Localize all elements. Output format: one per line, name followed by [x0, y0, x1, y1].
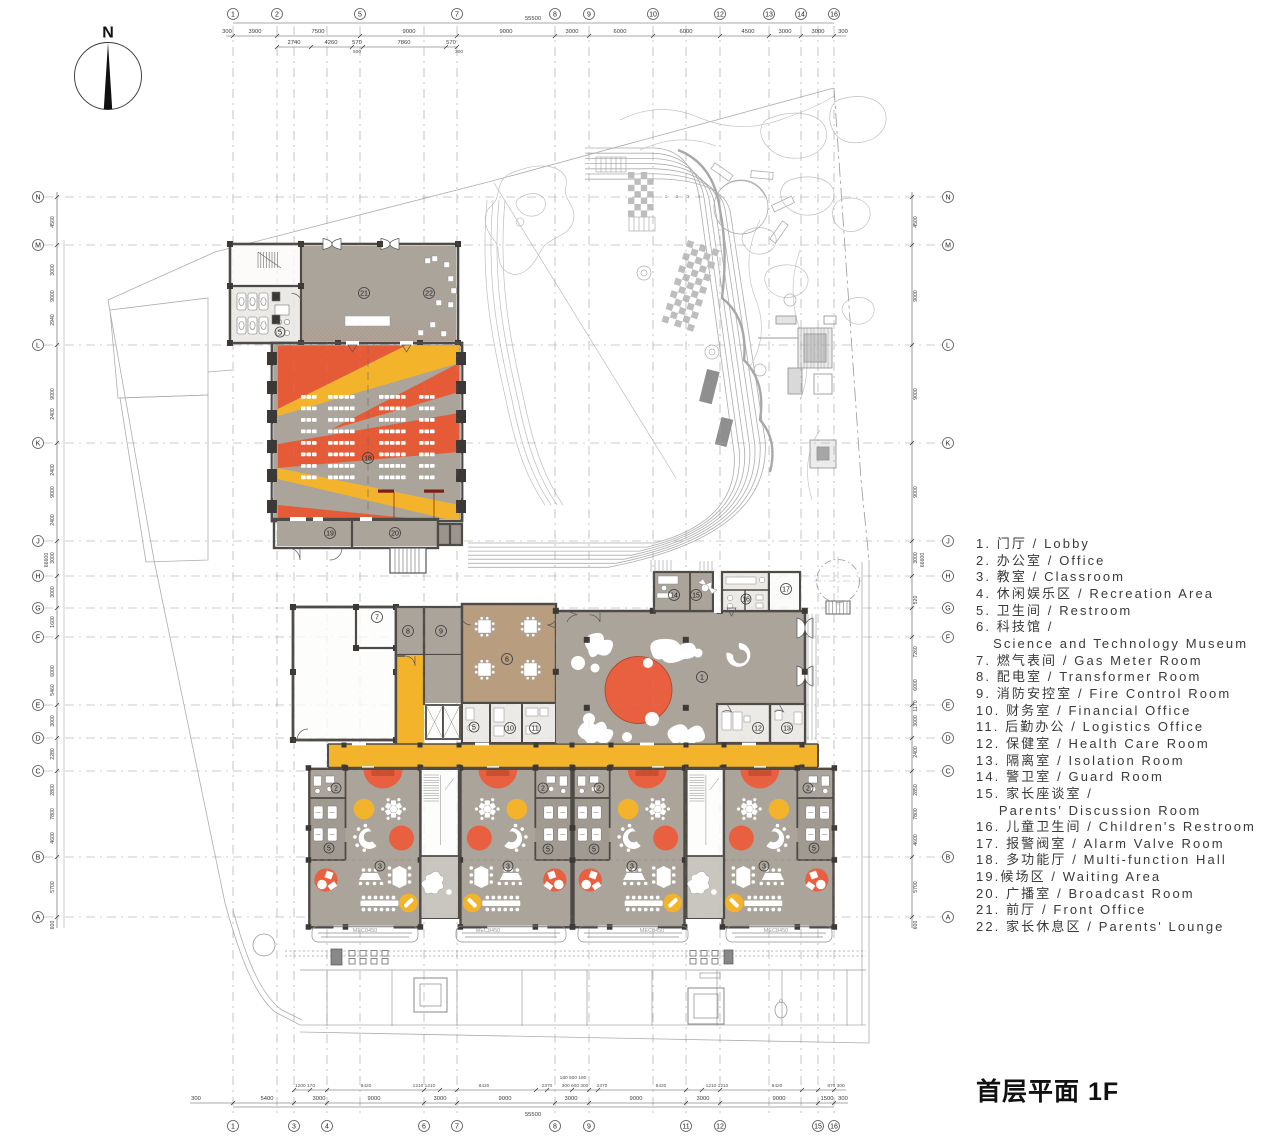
- svg-text:L: L: [36, 343, 40, 350]
- svg-text:300: 300: [838, 29, 848, 35]
- svg-text:2740: 2740: [288, 40, 301, 46]
- svg-text:N: N: [945, 195, 950, 202]
- svg-text:4500: 4500: [913, 216, 919, 228]
- svg-text:8420: 8420: [656, 1083, 667, 1089]
- svg-text:9: 9: [587, 12, 591, 19]
- svg-text:6000: 6000: [50, 665, 56, 677]
- svg-text:4: 4: [325, 1124, 329, 1131]
- svg-text:4600: 4600: [913, 834, 919, 846]
- svg-text:7500: 7500: [312, 29, 325, 35]
- svg-text:66600: 66600: [920, 553, 926, 568]
- svg-text:3000: 3000: [913, 715, 919, 727]
- svg-text:A: A: [36, 915, 41, 922]
- svg-text:6000: 6000: [614, 29, 627, 35]
- svg-text:C: C: [945, 769, 950, 776]
- svg-text:16: 16: [742, 597, 750, 604]
- svg-text:10: 10: [649, 12, 657, 19]
- svg-text:4500: 4500: [50, 216, 56, 228]
- svg-text:3000: 3000: [565, 1096, 578, 1102]
- svg-text:7800: 7800: [50, 808, 56, 820]
- svg-text:1: 1: [231, 12, 235, 19]
- svg-text:55500: 55500: [525, 1112, 541, 1118]
- svg-text:MEC8450: MEC8450: [764, 928, 788, 934]
- svg-text:4260: 4260: [325, 40, 338, 46]
- svg-text:N: N: [35, 195, 40, 202]
- svg-text:9000: 9000: [913, 388, 919, 400]
- svg-text:14: 14: [797, 12, 805, 19]
- svg-text:570: 570: [352, 40, 362, 46]
- svg-text:300: 300: [191, 1096, 201, 1102]
- svg-text:12: 12: [716, 1124, 724, 1131]
- svg-text:E: E: [946, 703, 951, 710]
- svg-text:9000: 9000: [403, 29, 416, 35]
- svg-text:2: 2: [597, 786, 601, 793]
- svg-text:5460: 5460: [50, 684, 56, 696]
- svg-text:2: 2: [275, 12, 279, 19]
- svg-text:13: 13: [765, 12, 773, 19]
- svg-text:F: F: [946, 635, 950, 642]
- svg-text:MEC8450: MEC8450: [640, 928, 664, 934]
- svg-text:500: 500: [353, 49, 361, 55]
- svg-text:4600: 4600: [50, 832, 56, 844]
- svg-text:3: 3: [292, 1124, 296, 1131]
- svg-text:2: 2: [334, 786, 338, 793]
- svg-text:N: N: [102, 25, 114, 42]
- svg-text:870 300: 870 300: [827, 1083, 845, 1089]
- svg-text:2280: 2280: [50, 748, 56, 760]
- svg-text:9000: 9000: [368, 1096, 381, 1102]
- svg-text:5: 5: [592, 847, 596, 854]
- svg-text:55500: 55500: [525, 16, 541, 22]
- svg-text:J: J: [946, 539, 950, 546]
- svg-text:MEC8450: MEC8450: [353, 928, 377, 934]
- svg-text:1210 1210: 1210 1210: [413, 1083, 436, 1089]
- svg-text:B: B: [36, 855, 41, 862]
- svg-text:15: 15: [692, 593, 700, 600]
- svg-text:5700: 5700: [50, 881, 56, 893]
- svg-text:D: D: [35, 736, 40, 743]
- svg-text:H: H: [35, 574, 40, 581]
- svg-text:5: 5: [358, 12, 362, 19]
- svg-text:8: 8: [553, 1124, 557, 1131]
- svg-text:7860: 7860: [398, 40, 411, 46]
- svg-text:570: 570: [446, 40, 456, 46]
- svg-text:1200 170: 1200 170: [295, 1083, 315, 1089]
- svg-text:600: 600: [50, 921, 56, 930]
- svg-text:2370: 2370: [542, 1083, 553, 1089]
- svg-text:13: 13: [783, 726, 791, 733]
- svg-text:6000: 6000: [680, 29, 693, 35]
- svg-text:3: 3: [762, 864, 766, 871]
- svg-text:16: 16: [830, 12, 838, 19]
- svg-text:E: E: [36, 703, 41, 710]
- svg-text:600: 600: [913, 921, 919, 930]
- svg-text:9000: 9000: [50, 290, 56, 302]
- svg-text:1600: 1600: [50, 616, 56, 628]
- svg-text:5400: 5400: [261, 1096, 274, 1102]
- svg-text:6: 6: [505, 657, 509, 664]
- svg-text:7: 7: [375, 615, 379, 622]
- svg-text:15: 15: [814, 1124, 822, 1131]
- svg-text:9000: 9000: [913, 486, 919, 498]
- svg-text:2850: 2850: [913, 784, 919, 796]
- svg-text:300 600 300: 300 600 300: [562, 1083, 589, 1089]
- svg-text:1210 1210: 1210 1210: [706, 1083, 729, 1089]
- svg-text:L: L: [946, 343, 950, 350]
- svg-text:8: 8: [406, 629, 410, 636]
- svg-text:21: 21: [360, 291, 368, 298]
- svg-text:3000: 3000: [697, 1096, 710, 1102]
- svg-text:3000: 3000: [913, 552, 919, 564]
- svg-text:2: 2: [541, 786, 545, 793]
- svg-text:3000: 3000: [434, 1096, 447, 1102]
- svg-text:3000: 3000: [50, 264, 56, 276]
- svg-text:2940: 2940: [50, 314, 56, 326]
- svg-text:3: 3: [378, 864, 382, 871]
- svg-text:10: 10: [506, 726, 514, 733]
- svg-text:7: 7: [455, 12, 459, 19]
- svg-text:66600: 66600: [44, 553, 50, 568]
- svg-text:M: M: [945, 243, 951, 250]
- svg-text:G: G: [945, 606, 950, 613]
- svg-text:300: 300: [222, 29, 232, 35]
- svg-text:B: B: [946, 855, 951, 862]
- svg-text:D: D: [945, 736, 950, 743]
- svg-text:3000: 3000: [50, 586, 56, 598]
- svg-text:5: 5: [812, 846, 816, 853]
- svg-text:9000: 9000: [500, 29, 513, 35]
- svg-text:2: 2: [806, 786, 810, 793]
- svg-text:3: 3: [630, 864, 634, 871]
- svg-text:22: 22: [425, 291, 433, 298]
- svg-text:7: 7: [455, 1124, 459, 1131]
- svg-text:A: A: [946, 915, 951, 922]
- svg-text:8420: 8420: [361, 1083, 372, 1089]
- svg-text:8420: 8420: [479, 1083, 490, 1089]
- svg-text:H: H: [945, 574, 950, 581]
- svg-text:8420: 8420: [772, 1083, 783, 1089]
- svg-text:11: 11: [682, 1124, 689, 1131]
- svg-text:300: 300: [838, 1096, 848, 1102]
- svg-text:F: F: [36, 635, 40, 642]
- svg-text:3000: 3000: [779, 29, 792, 35]
- svg-text:3000: 3000: [313, 1096, 326, 1102]
- svg-text:5: 5: [327, 846, 331, 853]
- svg-text:6: 6: [422, 1124, 426, 1131]
- svg-text:3000: 3000: [50, 715, 56, 727]
- svg-text:5: 5: [472, 725, 476, 732]
- svg-text:5700: 5700: [913, 881, 919, 893]
- svg-text:300: 300: [455, 49, 463, 55]
- svg-text:2400: 2400: [50, 514, 56, 526]
- svg-text:11: 11: [531, 726, 538, 733]
- svg-text:7260: 7260: [913, 646, 919, 658]
- svg-text:9: 9: [587, 1124, 591, 1131]
- svg-text:9000: 9000: [630, 1096, 643, 1102]
- svg-text:1170: 1170: [913, 700, 919, 711]
- svg-text:18: 18: [364, 456, 372, 463]
- svg-text:1: 1: [700, 675, 704, 682]
- svg-text:3000: 3000: [566, 29, 579, 35]
- svg-text:1: 1: [231, 1124, 235, 1131]
- svg-text:14: 14: [670, 593, 678, 600]
- svg-text:3000: 3000: [812, 29, 825, 35]
- svg-text:7800: 7800: [913, 808, 919, 820]
- svg-text:G: G: [35, 606, 40, 613]
- svg-text:12: 12: [754, 726, 762, 733]
- svg-text:2400: 2400: [913, 746, 919, 758]
- svg-text:16: 16: [830, 1124, 838, 1131]
- svg-text:2800: 2800: [50, 784, 56, 796]
- svg-text:K: K: [36, 441, 41, 448]
- svg-text:5: 5: [546, 847, 550, 854]
- svg-text:17: 17: [782, 587, 790, 594]
- svg-text:1500: 1500: [821, 1096, 834, 1102]
- svg-text:6000: 6000: [913, 679, 919, 691]
- svg-text:180 500 180: 180 500 180: [560, 1075, 587, 1081]
- svg-text:2370: 2370: [597, 1083, 608, 1089]
- svg-text:2400: 2400: [50, 464, 56, 476]
- svg-text:9000: 9000: [50, 486, 56, 498]
- svg-text:4500: 4500: [742, 29, 755, 35]
- svg-text:20: 20: [391, 531, 399, 538]
- svg-text:2400: 2400: [50, 408, 56, 420]
- svg-text:K: K: [946, 441, 951, 448]
- svg-text:M: M: [35, 243, 41, 250]
- svg-text:12: 12: [716, 12, 724, 19]
- svg-text:520: 520: [913, 596, 919, 605]
- svg-text:3900: 3900: [249, 29, 262, 35]
- svg-text:C: C: [35, 769, 40, 776]
- svg-text:3000: 3000: [50, 552, 56, 564]
- svg-text:9000: 9000: [773, 1096, 786, 1102]
- svg-text:9000: 9000: [499, 1096, 512, 1102]
- svg-text:J: J: [36, 539, 40, 546]
- svg-text:9: 9: [439, 629, 443, 636]
- svg-text:5: 5: [278, 330, 282, 337]
- svg-text:9000: 9000: [913, 290, 919, 302]
- svg-text:9000: 9000: [50, 388, 56, 400]
- svg-text:8: 8: [553, 12, 557, 19]
- svg-text:MEC8450: MEC8450: [476, 928, 500, 934]
- svg-text:3: 3: [506, 864, 510, 871]
